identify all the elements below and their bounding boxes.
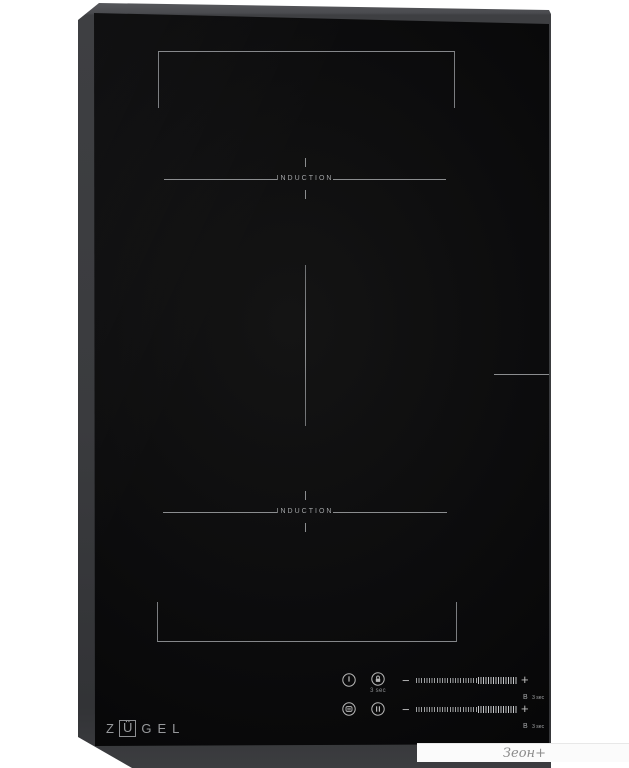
bottom-zone-upper-tick [305,491,306,500]
lock-hold-hint: 3 sec [366,688,390,694]
bottom-zone-label: INDUCTION [277,508,334,515]
right-zone-marker-line [494,374,549,375]
top-zone-left-line [164,179,277,180]
slider1-track [416,676,517,685]
top-zone-label: INDUCTION [277,175,334,182]
slider2-track [416,705,517,714]
slider2-plus: + [521,702,529,715]
slider2-minus: − [402,703,410,716]
logo-letter-z: Z [106,721,114,736]
top-zone-lower-tick [305,190,306,199]
boost-letter: B [523,723,528,730]
slider1-minus: − [402,674,410,687]
slider2-ticks-high [478,706,517,713]
bottom-zone-right-line [333,512,447,513]
power-icon [341,672,357,688]
slider2-boost-label: B 3 sec [523,715,544,733]
brand-logo-zugel: Z Ü GEL [106,720,185,737]
top-zone-upper-tick [305,158,306,167]
flex-zone-divider-line [305,265,306,426]
slider1-plus: + [521,673,529,686]
bottom-zone-left-line [163,512,277,513]
slider2-ticks-low [416,707,478,712]
product-photo-induction-hob: INDUCTION INDUCTION 3 sec [0,0,629,768]
slider1-ticks-high [478,677,517,684]
bottom-zone-lower-tick [305,523,306,532]
watermark-text: Зеон+ [503,746,546,761]
logo-letter-u-boxed: Ü [119,720,136,737]
top-zone-right-line [333,179,446,180]
lock-icon [370,671,386,687]
top-zone-bracket [158,51,455,108]
bottom-zone-bracket [157,602,457,642]
pause-icon [370,701,386,717]
keep-warm-icon [341,701,357,717]
slider1-ticks-low [416,678,478,683]
watermark-strip: Зеон+ [417,743,629,762]
boost-hint: 3 sec [532,724,544,730]
logo-letters-gel: GEL [141,721,185,736]
boost-hint: 3 sec [532,695,544,701]
boost-letter: B [523,694,528,701]
